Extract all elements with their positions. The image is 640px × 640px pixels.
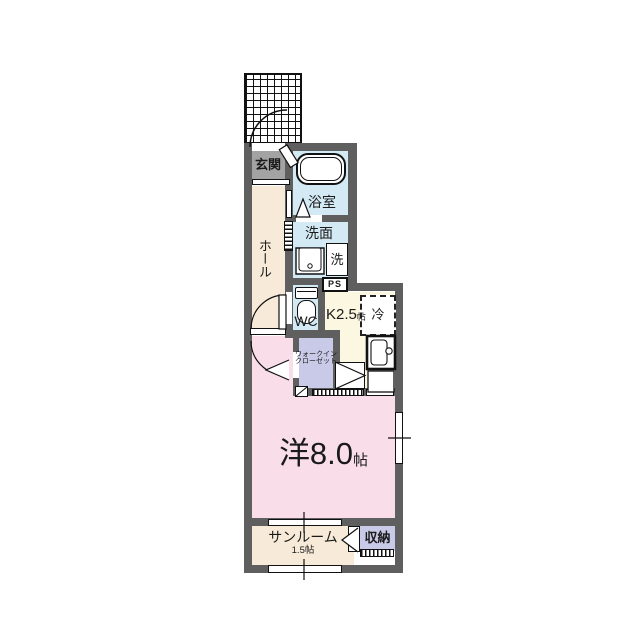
toilet-tank-icon [295,287,318,299]
kitchen-room-slider [312,389,364,396]
sunroom-window-bottom [268,565,342,573]
room-main-arm [252,336,293,398]
kitchen-room-counter-gap [366,389,394,396]
genkan-step [252,179,290,185]
label-genkan: 玄関 [250,155,286,175]
bathtub-icon [296,153,346,185]
counter-hatch-box [335,362,365,389]
floor-plan: 玄関 浴室 洗面 洗 ホール WC PS K2.5帖 冷 ウォークイン クローゼ… [0,0,640,640]
entry-door-gap [252,143,285,151]
main-window-right [395,412,403,464]
wall-storage-side [354,518,403,526]
label-main-room: 洋8.0帖 [252,432,395,476]
label-storage: 収納 [360,528,395,548]
sunroom-window-top [268,519,342,526]
label-ps: PS [322,278,348,291]
label-washer: 洗 [326,250,348,270]
label-wc: WC [291,312,321,330]
porch-hatch-area [244,73,302,145]
label-sunroom: サンルーム [252,528,354,546]
label-sunroom-size: 1.5帖 [252,545,354,557]
storage-bottom-hatch [360,549,394,557]
label-hall: ホール [255,218,273,298]
label-washroom: 洗面 [294,223,344,243]
wall-left [244,143,252,573]
bath-wash-door-gap [296,215,322,222]
bathroom-door-gap [286,190,292,218]
post-mark-box [295,386,308,397]
label-wic: ウォークイン クローゼット [299,348,333,368]
hall-room-opening [250,328,286,335]
wall-right-upper [348,143,357,291]
label-fridge: 冷 [366,305,390,325]
washroom-sliding-door [284,221,293,251]
label-bathroom: 浴室 [298,192,346,212]
